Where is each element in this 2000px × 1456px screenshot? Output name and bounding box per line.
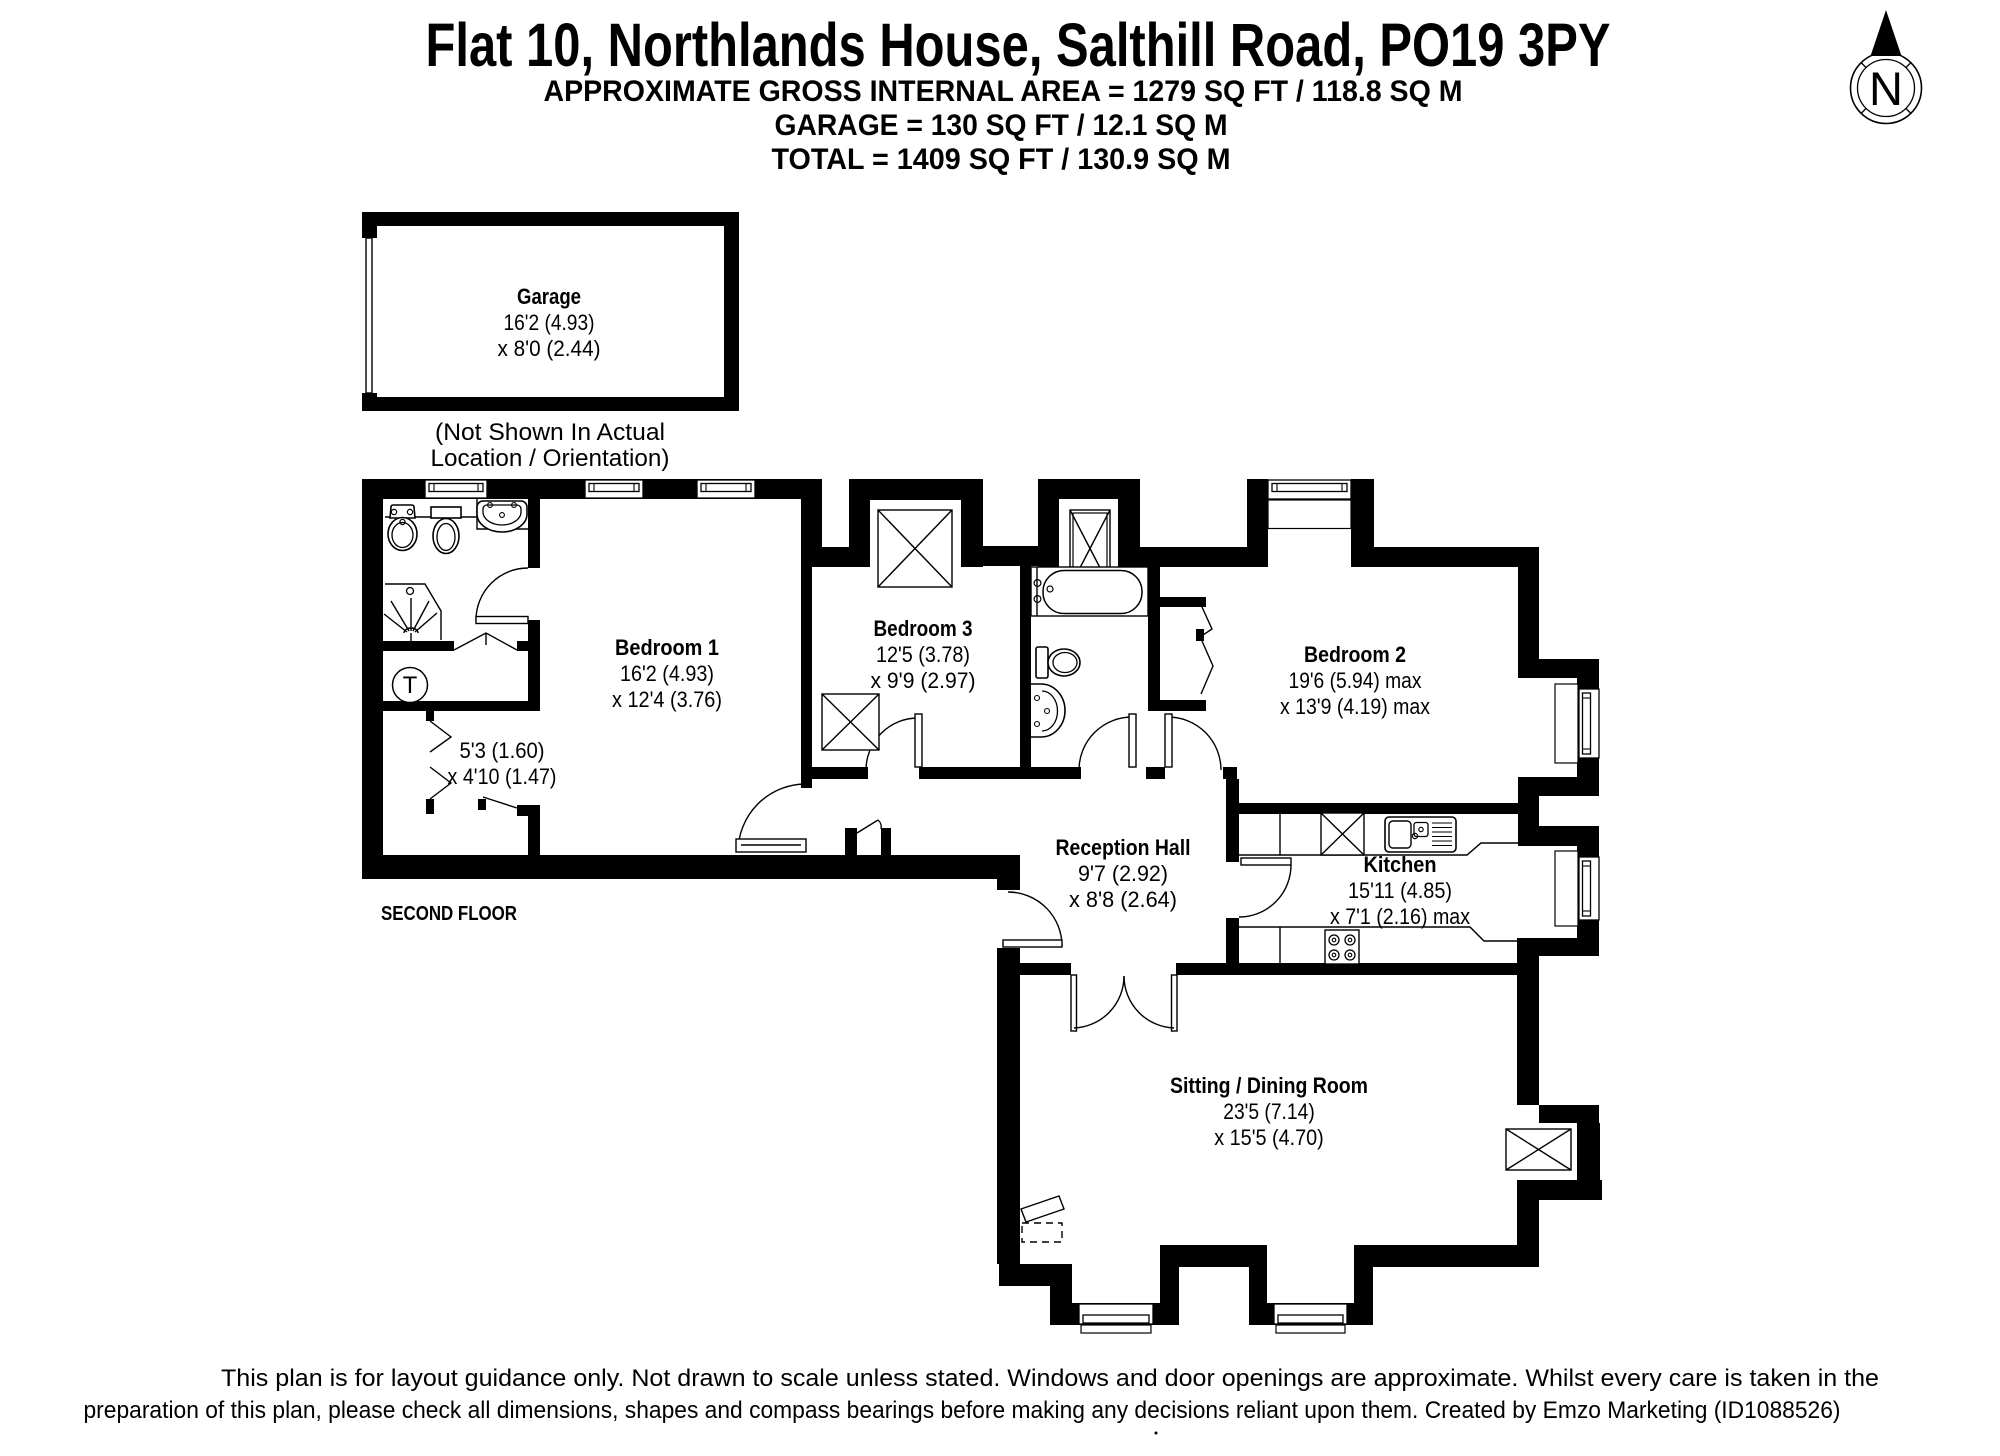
svg-text:Flat 10, Northlands House, Sal: Flat 10, Northlands House, Salthill Road… [426,11,1611,79]
svg-text:T: T [403,672,418,699]
svg-text:GARAGE = 130 SQ FT / 12.1 SQ M: GARAGE = 130 SQ FT / 12.1 SQ M [775,109,1228,142]
svg-text:Garage: Garage [517,284,581,309]
svg-text:Reception Hall: Reception Hall [1056,835,1191,860]
svg-text:Bedroom 1: Bedroom 1 [615,635,719,660]
svg-text:x 15'5 (4.70): x 15'5 (4.70) [1214,1125,1324,1150]
svg-text:(Not Shown In Actual: (Not Shown In Actual [435,419,665,446]
svg-text:23'5 (7.14): 23'5 (7.14) [1223,1099,1315,1124]
svg-text:TOTAL = 1409 SQ FT / 130.9 SQ: TOTAL = 1409 SQ FT / 130.9 SQ M [772,143,1231,176]
svg-text:Kitchen: Kitchen [1364,852,1437,877]
svg-text:Location / Orientation): Location / Orientation) [431,445,670,472]
svg-text:x 9'9 (2.97): x 9'9 (2.97) [871,668,976,693]
svg-text:16'2 (4.93): 16'2 (4.93) [504,310,595,335]
svg-text:APPROXIMATE GROSS INTERNAL ARE: APPROXIMATE GROSS INTERNAL AREA = 1279 S… [544,75,1463,108]
svg-text:15'11 (4.85): 15'11 (4.85) [1348,878,1452,903]
svg-text:19'6 (5.94) max: 19'6 (5.94) max [1289,668,1422,693]
svg-text:Sitting / Dining Room: Sitting / Dining Room [1170,1073,1368,1098]
svg-text:This plan is for layout guidan: This plan is for layout guidance only. N… [221,1365,1879,1392]
svg-text:16'2 (4.93): 16'2 (4.93) [620,661,714,686]
svg-text:12'5 (3.78): 12'5 (3.78) [876,642,970,667]
svg-text:x 13'9 (4.19) max: x 13'9 (4.19) max [1280,694,1430,719]
svg-text:SECOND FLOOR: SECOND FLOOR [381,903,517,925]
svg-text:x 7'1 (2.16) max: x 7'1 (2.16) max [1330,904,1470,929]
svg-text:x 8'8 (2.64): x 8'8 (2.64) [1069,887,1177,912]
svg-text:Bedroom 2: Bedroom 2 [1304,642,1406,667]
svg-text:9'7 (2.92): 9'7 (2.92) [1078,861,1168,886]
svg-text:x 8'0 (2.44): x 8'0 (2.44) [498,336,601,361]
svg-text:x 12'4 (3.76): x 12'4 (3.76) [612,687,722,712]
svg-text:x 4'10 (1.47): x 4'10 (1.47) [448,764,557,789]
svg-text:5'3 (1.60): 5'3 (1.60) [460,738,545,763]
svg-text:N: N [1869,62,1903,115]
svg-text:preparation of this plan, plea: preparation of this plan, please check a… [84,1397,1841,1424]
svg-text:Bedroom 3: Bedroom 3 [874,616,973,641]
